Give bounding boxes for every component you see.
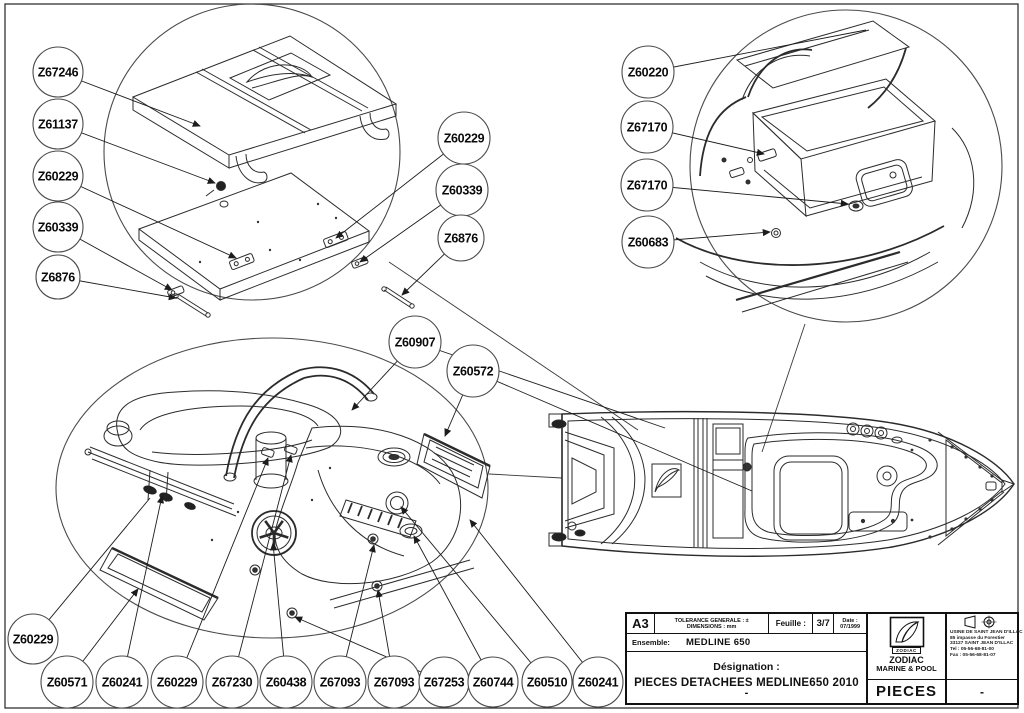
document-type: PIECES [868, 680, 945, 703]
part-callout-z60229: Z60229 [33, 151, 83, 201]
part-number-label: Z60339 [442, 184, 483, 198]
part-callout-z67230: Z67230 [206, 656, 258, 708]
drawing-sheet: Z67246Z61137Z60229Z60339Z6876Z60229Z6033… [0, 0, 1024, 713]
part-callout-z60683: Z60683 [622, 216, 674, 268]
part-number-label: Z60744 [473, 676, 514, 690]
part-number-label: Z6876 [444, 232, 478, 246]
part-number-label: Z60229 [444, 132, 485, 146]
part-number-label: Z60438 [266, 676, 307, 690]
part-callouts: Z67246Z61137Z60229Z60339Z6876Z60229Z6033… [8, 46, 674, 708]
part-callout-z60510: Z60510 [522, 657, 572, 707]
part-number-label: Z60571 [47, 676, 88, 690]
part-callout-z6876: Z6876 [438, 215, 484, 261]
part-number-label: Z60229 [38, 170, 79, 184]
company-division: MARINE & POOL [876, 665, 936, 673]
part-number-label: Z60220 [628, 66, 669, 80]
revision-value: - [947, 680, 1017, 703]
part-callout-z60572: Z60572 [447, 345, 499, 397]
part-callout-z60744: Z60744 [468, 657, 518, 707]
part-callout-z60571: Z60571 [41, 656, 93, 708]
part-callout-z67246: Z67246 [33, 47, 83, 97]
date-cell: Date : 07/1999 [834, 614, 866, 633]
part-number-label: Z67230 [212, 676, 253, 690]
part-number-label: Z67253 [424, 676, 465, 690]
part-callout-z60907: Z60907 [389, 316, 441, 368]
ensemble-value: MEDLINE 650 [686, 637, 751, 648]
paper-format: A3 [627, 614, 655, 633]
part-callout-z67093: Z67093 [314, 656, 366, 708]
designation-cell: Désignation : PIECES DETACHEES MEDLINE65… [627, 652, 866, 703]
part-callout-z6876: Z6876 [36, 255, 80, 299]
zodiac-logo-icon [889, 616, 925, 648]
part-number-label: Z60510 [527, 676, 568, 690]
leader-line [473, 371, 752, 491]
part-number-label: Z60229 [13, 633, 54, 647]
tolerance-note: TOLERANCE GENERALE : ± DIMENSIONS : mm [655, 614, 770, 633]
part-callout-z60229: Z60229 [151, 656, 203, 708]
part-number-label: Z67093 [320, 676, 361, 690]
part-number-label: Z60241 [578, 676, 619, 690]
part-number-label: Z6876 [41, 271, 75, 285]
company-logo-cell: ZODIAC ZODIAC MARINE & POOL [868, 614, 945, 680]
part-callout-z60339: Z60339 [436, 164, 488, 216]
address-cell: USINE DE SAINT JEAN D'ILLAC85 impasse du… [947, 614, 1017, 680]
part-number-label: Z60339 [38, 221, 79, 235]
address-line: Fax : 05-56-68-81-07 [950, 653, 1014, 659]
address-line: USINE DE SAINT JEAN D'ILLAC [950, 630, 1014, 636]
part-number-label: Z67093 [374, 676, 415, 690]
sheet-number: 3/7 [813, 614, 834, 633]
drawing-console [85, 367, 490, 620]
part-number-label: Z60907 [395, 336, 436, 350]
leader-line [33, 498, 150, 639]
projection-symbol-icon [962, 615, 1002, 629]
designation-suffix: - [627, 689, 866, 698]
part-number-label: Z60229 [157, 676, 198, 690]
part-number-label: Z61137 [38, 118, 78, 132]
part-callout-z67093: Z67093 [368, 656, 420, 708]
detail-bubble-bow-locker [690, 10, 1002, 322]
ensemble-row: Ensemble: MEDLINE 650 [627, 634, 866, 652]
leader-line [648, 30, 866, 72]
part-number-label: Z67170 [627, 121, 668, 135]
designation-label: Désignation : [627, 661, 866, 673]
part-callout-z60229: Z60229 [8, 614, 58, 664]
part-callout-z60241: Z60241 [96, 656, 148, 708]
part-number-label: Z60572 [453, 365, 494, 379]
sheet-label: Feuille : [769, 614, 813, 633]
part-number-label: Z67170 [627, 179, 668, 193]
leader-line [401, 507, 547, 682]
part-callout-z67170: Z67170 [621, 159, 673, 211]
part-callout-z60339: Z60339 [33, 202, 83, 252]
part-callout-z60438: Z60438 [260, 656, 312, 708]
part-number-label: Z60241 [102, 676, 143, 690]
drawing-bow-locker [676, 21, 974, 312]
leader-line [232, 455, 291, 682]
leader-line [647, 185, 848, 204]
ensemble-label: Ensemble: [632, 638, 670, 647]
part-callout-z60220: Z60220 [622, 46, 674, 98]
part-number-label: Z67246 [38, 66, 79, 80]
drawing-sundeck-exploded [133, 36, 414, 317]
title-block: A3 TOLERANCE GENERALE : ± DIMENSIONS : m… [625, 612, 1019, 705]
part-callout-z60241: Z60241 [573, 657, 623, 707]
part-callout-z67253: Z67253 [419, 657, 469, 707]
part-callout-z61137: Z61137 [33, 99, 83, 149]
part-number-label: Z60683 [628, 236, 669, 250]
exploded-parts-drawing: Z67246Z61137Z60229Z60339Z6876Z60229Z6033… [0, 0, 1024, 713]
part-callout-z60229: Z60229 [438, 112, 490, 164]
factory-address: USINE DE SAINT JEAN D'ILLAC85 impasse du… [950, 630, 1014, 659]
zodiac-logo-text: ZODIAC [892, 647, 921, 654]
part-callout-z67170: Z67170 [621, 101, 673, 153]
